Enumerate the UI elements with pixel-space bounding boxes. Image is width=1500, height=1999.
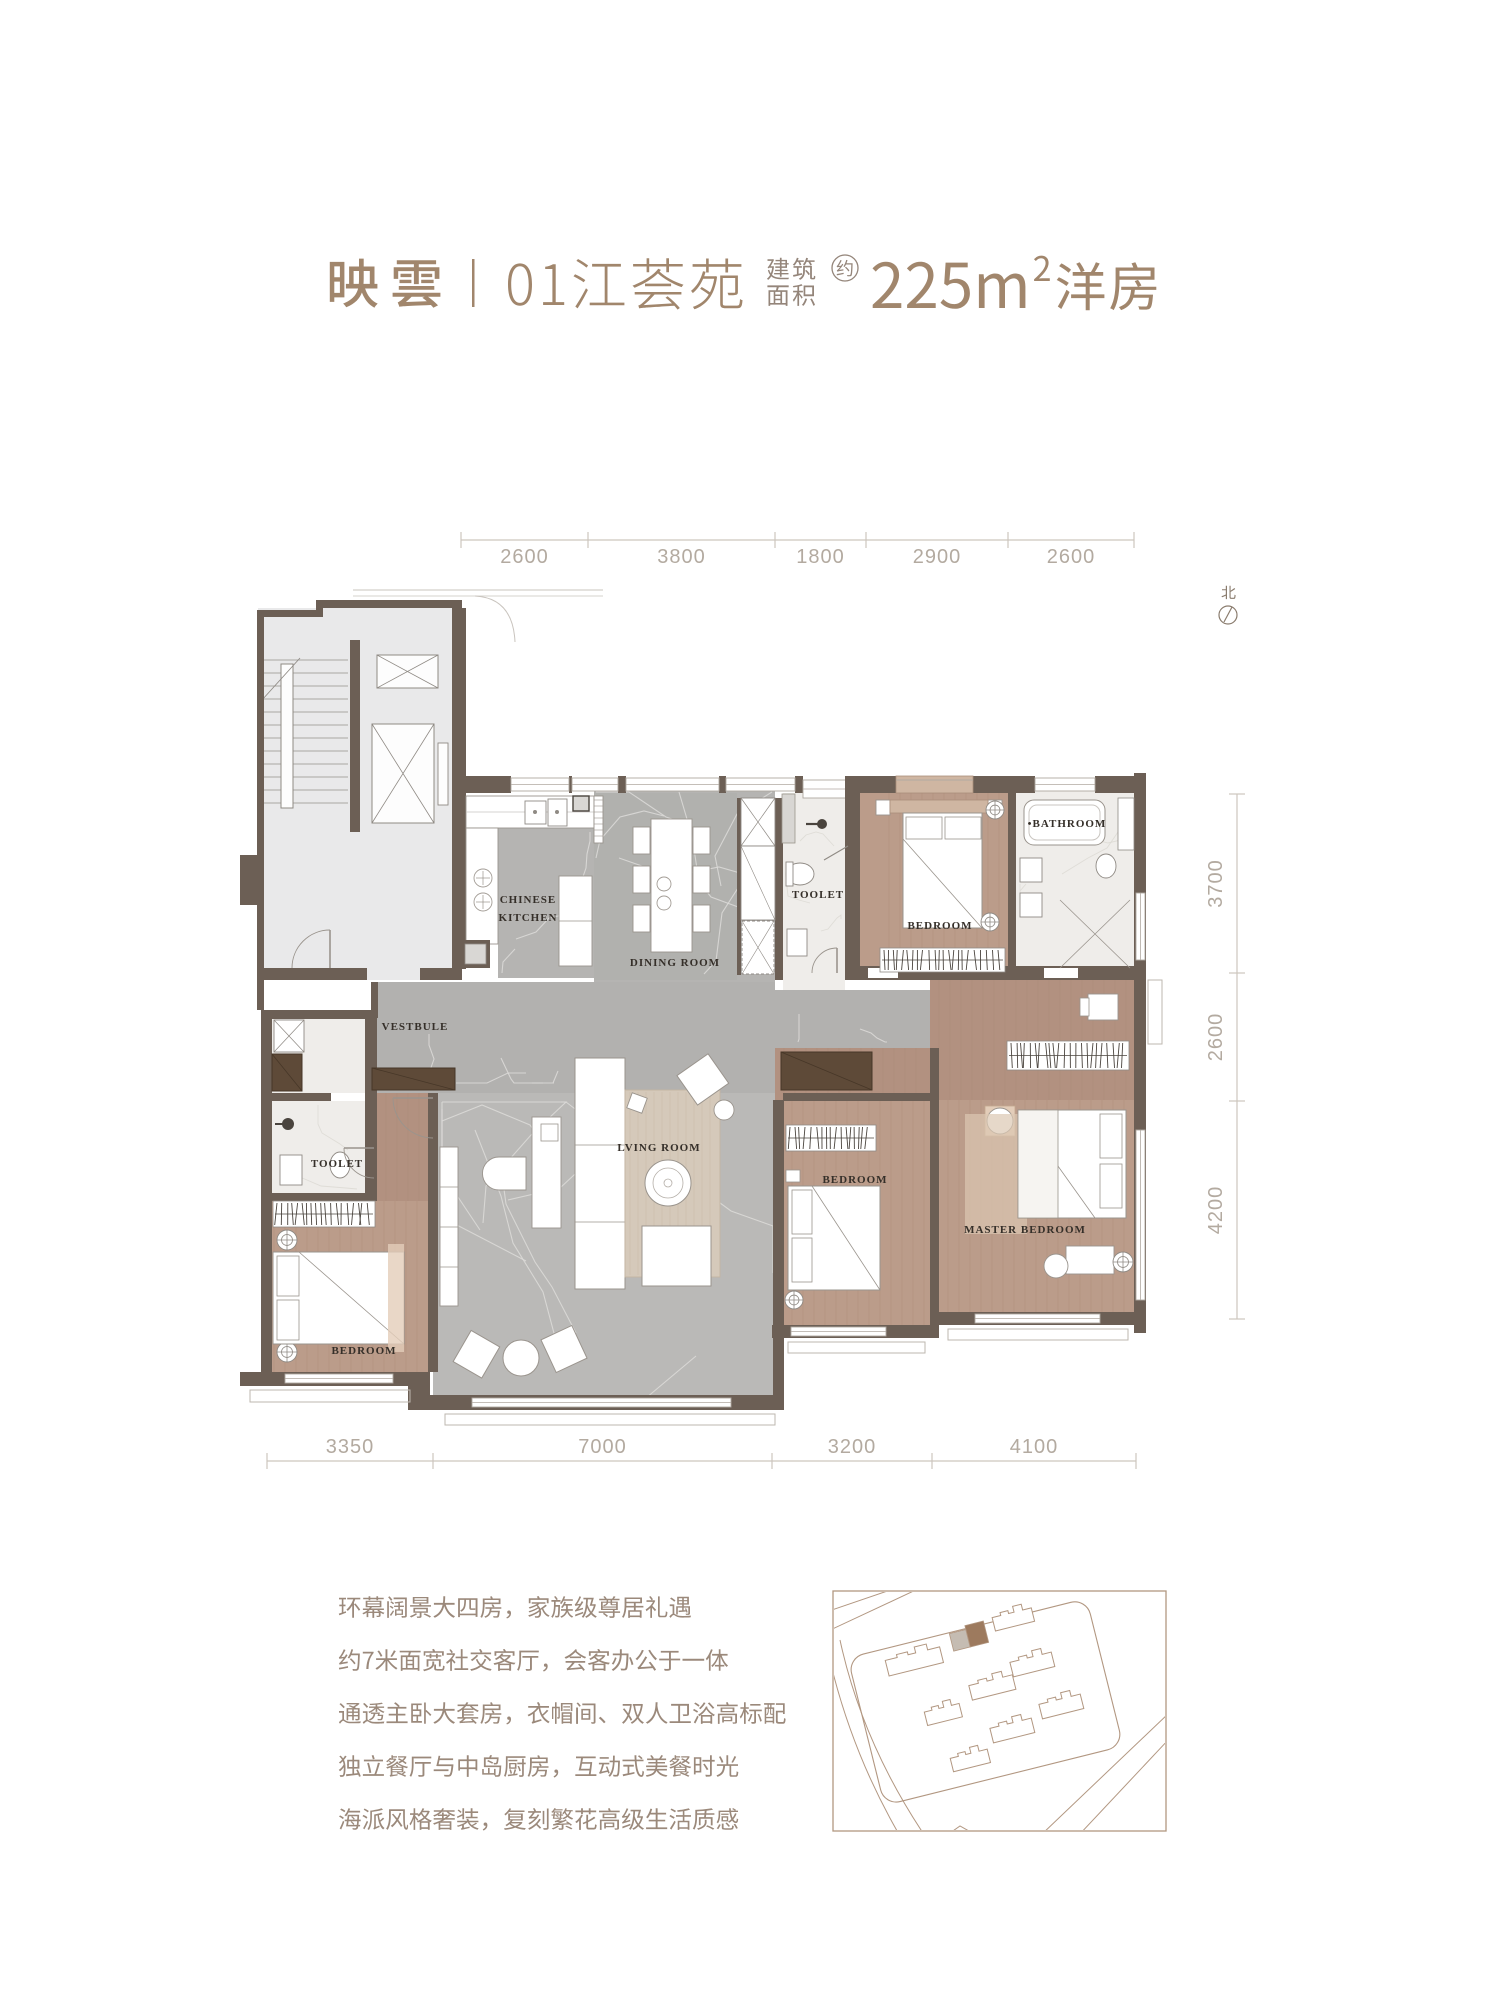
svg-text:4100: 4100 (1010, 1436, 1059, 1458)
svg-text:BEDROOM: BEDROOM (331, 1345, 396, 1357)
svg-text:•BATHROOM: •BATHROOM (1028, 818, 1107, 830)
svg-text:BEDROOM: BEDROOM (907, 920, 972, 932)
svg-text:KITCHEN: KITCHEN (499, 912, 558, 924)
svg-text:1800: 1800 (796, 546, 845, 568)
svg-text:3800: 3800 (657, 546, 706, 568)
svg-text:TOOLET: TOOLET (792, 889, 844, 901)
svg-text:VESTBULE: VESTBULE (382, 1021, 449, 1033)
svg-text:7000: 7000 (578, 1436, 627, 1458)
svg-text:LVING ROOM: LVING ROOM (617, 1142, 700, 1154)
svg-text:3700: 3700 (1205, 859, 1227, 908)
svg-text:DINING ROOM: DINING ROOM (630, 957, 720, 969)
svg-text:3350: 3350 (326, 1436, 375, 1458)
svg-text:TOOLET: TOOLET (311, 1158, 363, 1170)
svg-text:CHINESE: CHINESE (500, 894, 557, 906)
svg-text:2600: 2600 (1205, 1013, 1227, 1062)
svg-text:2600: 2600 (500, 546, 549, 568)
svg-text:3200: 3200 (828, 1436, 877, 1458)
svg-text:2600: 2600 (1047, 546, 1096, 568)
svg-text:4200: 4200 (1205, 1186, 1227, 1235)
svg-text:MASTER BEDROOM: MASTER BEDROOM (964, 1224, 1086, 1236)
svg-text:2900: 2900 (913, 546, 962, 568)
svg-text:BEDROOM: BEDROOM (822, 1174, 887, 1186)
